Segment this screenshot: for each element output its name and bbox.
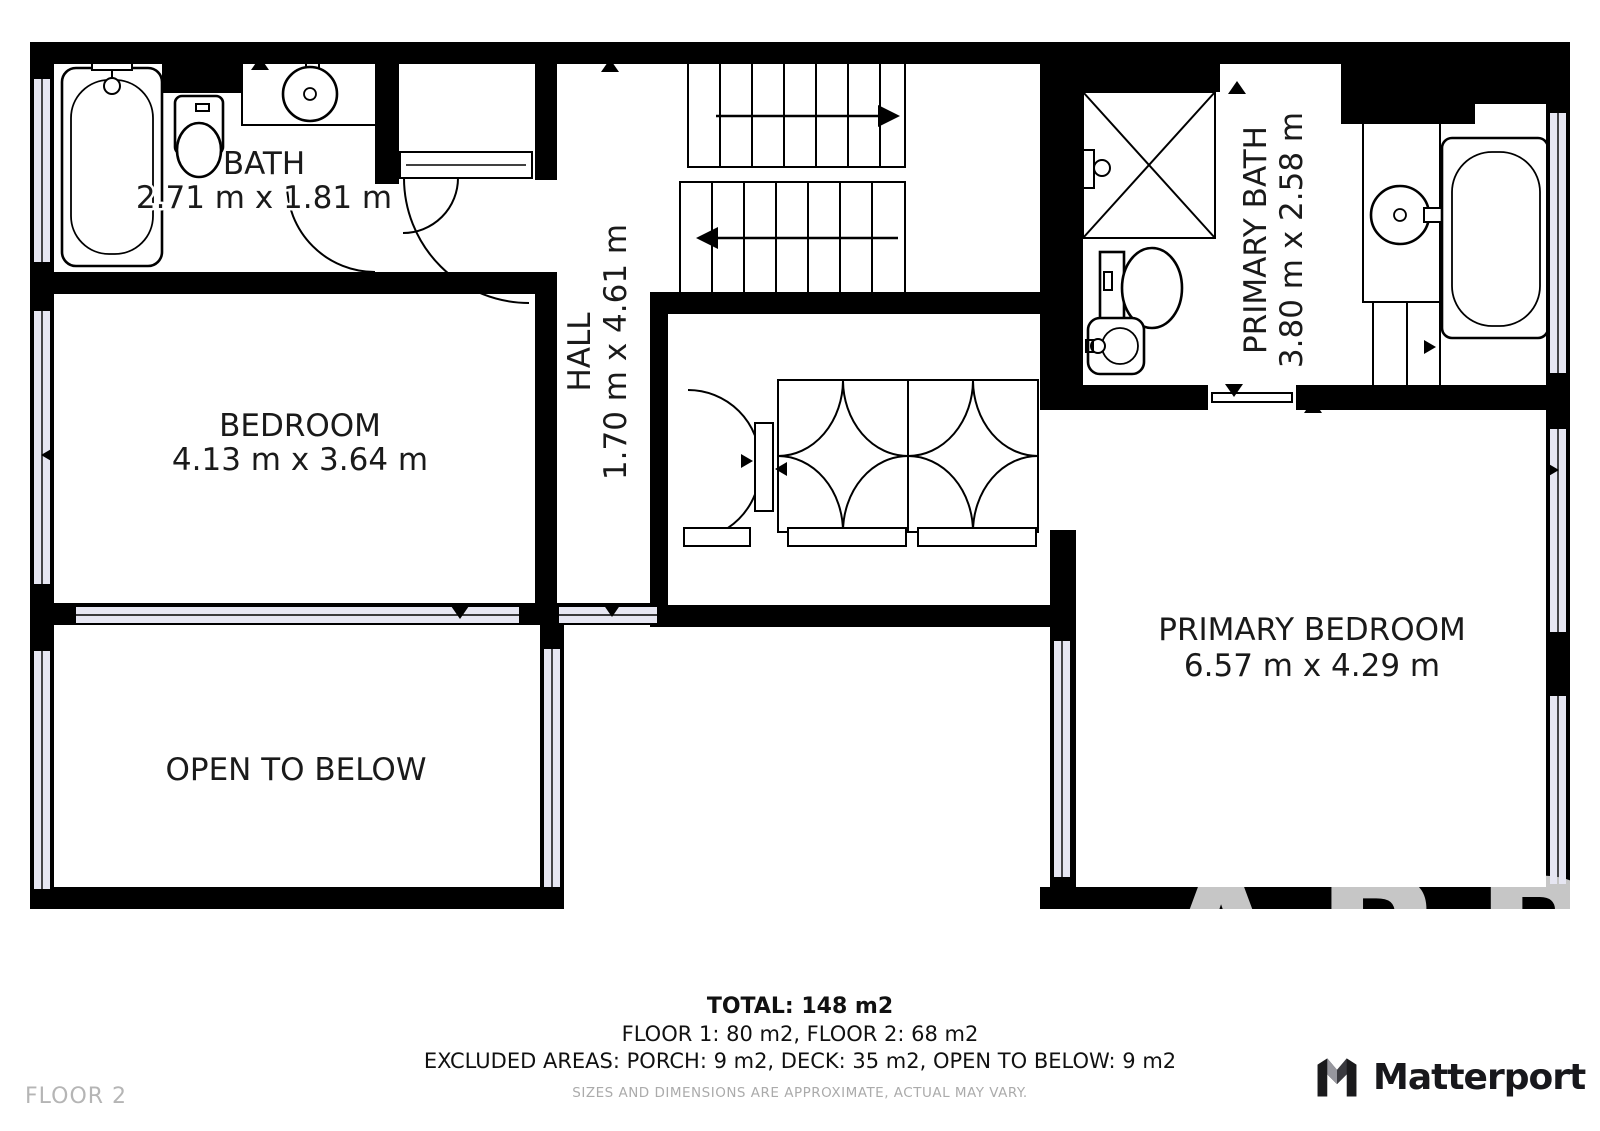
room-label-hall: HALL	[562, 312, 598, 392]
room-label-primary-bath: PRIMARY BATH	[1238, 126, 1274, 354]
door-swing-arc-icon	[403, 178, 458, 233]
door-direction-marker-icon	[1424, 340, 1436, 354]
room-label-bedroom: BEDROOM	[219, 408, 381, 444]
door-direction-marker-icon	[1228, 81, 1246, 94]
room-dims-primary-bath: 3.80 m x 2.58 m	[1274, 112, 1310, 368]
staircase	[680, 62, 905, 293]
stairs-up-arrow-icon	[716, 105, 900, 127]
brand-name: Matterport	[1373, 1057, 1585, 1098]
vanity-counter-icon	[1363, 122, 1444, 390]
door-sill	[1212, 393, 1292, 402]
brand-logo: Matterport	[1314, 1054, 1585, 1100]
room-dims-bedroom: 4.13 m x 3.64 m	[172, 442, 428, 478]
stair-treads-upper	[720, 62, 880, 167]
room-label-primary-bedroom: PRIMARY BEDROOM	[1158, 612, 1466, 648]
floor-plan-page: BATH 2.71 m x 1.81 m BEDROOM 4.13 m x 3.…	[0, 0, 1600, 1131]
bathtub-icon	[1442, 138, 1548, 338]
stairs-down-arrow-icon	[696, 227, 898, 249]
floor-areas-text: FLOOR 1: 80 m2, FLOOR 2: 68 m2	[0, 1022, 1600, 1046]
floor-label: FLOOR 2	[25, 1084, 127, 1109]
room-dims-primary-bedroom: 6.57 m x 4.29 m	[1184, 648, 1440, 684]
closet-sill	[788, 528, 906, 546]
matterport-m-cube-icon	[1314, 1054, 1360, 1100]
room-dims-bath: 2.71 m x 1.81 m	[136, 180, 392, 216]
door-frame	[755, 423, 773, 511]
door-swing-arc-icon	[688, 390, 760, 462]
closet-sill	[684, 528, 750, 546]
wall-basin-icon	[1086, 318, 1144, 374]
closet-bifold-doors-icon	[778, 380, 1038, 532]
door-direction-marker-icon	[775, 462, 787, 476]
room-label-open-to-below: OPEN TO BELOW	[166, 752, 427, 788]
room-label-bath: BATH	[223, 146, 305, 182]
toilet-icon	[1100, 248, 1182, 328]
room-dims-hall: 1.70 m x 4.61 m	[598, 224, 634, 480]
closet-sill	[918, 528, 1036, 546]
door-frames	[400, 152, 1292, 546]
shower-icon	[1083, 92, 1215, 238]
door-direction-marker-icon	[741, 454, 753, 468]
door-swing-arcs	[287, 178, 760, 540]
primary-bath-fixtures	[1083, 92, 1548, 390]
room-labels: BATH 2.71 m x 1.81 m BEDROOM 4.13 m x 3.…	[136, 112, 1466, 788]
total-area-text: TOTAL: 148 m2	[0, 994, 1600, 1019]
toilet-icon	[175, 96, 223, 177]
